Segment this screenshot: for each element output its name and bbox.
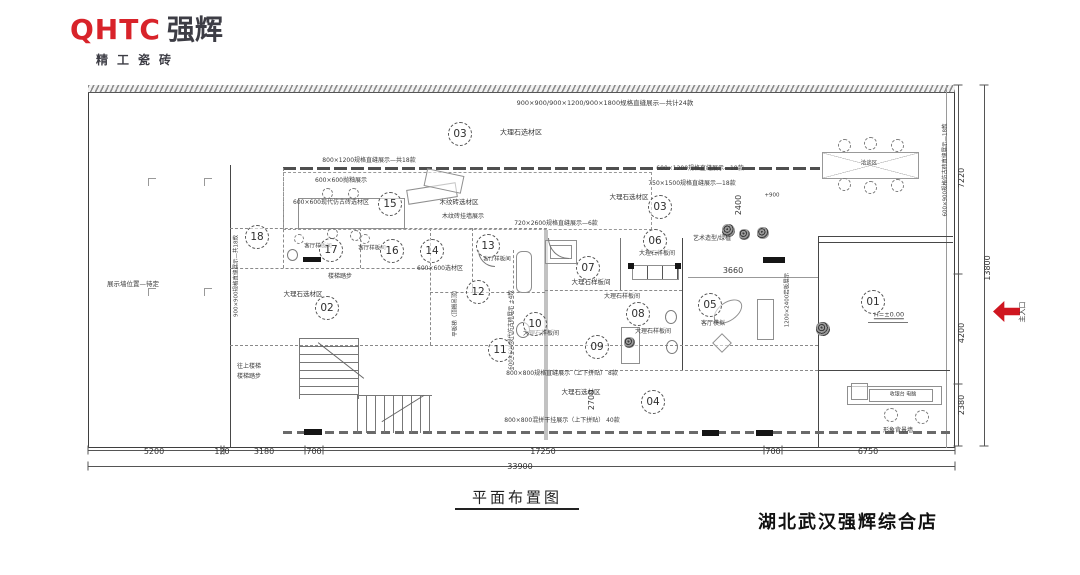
zone-circle: 06: [643, 229, 667, 253]
dimension-label: 3180: [254, 448, 274, 456]
stand-cap: [675, 263, 681, 269]
bathtub: [516, 251, 532, 293]
wall: [818, 370, 950, 371]
plan-label: 800×800混拼干挂展示（上下拼贴） 40款: [504, 418, 619, 424]
dimension-tick: [955, 462, 956, 471]
zone-circle: 03: [448, 122, 472, 146]
store-name: 湖北武汉强辉综合店: [758, 508, 938, 534]
plan-label: 客厅样板间: [483, 257, 511, 263]
dimension-line: [958, 85, 959, 446]
corner-mark: [204, 178, 212, 186]
plan-label: 600×1200规格直缝展示—18款: [656, 166, 743, 172]
plan-label: 大理石选材区: [284, 291, 323, 298]
plan-label: 600×600选材区: [417, 266, 463, 272]
dimension-label: 17250: [530, 448, 555, 456]
dimension-tick: [954, 384, 963, 385]
dimension-label: 7220: [958, 168, 966, 188]
plan-label: 形象背景墙: [883, 428, 913, 434]
plan-label: 楼梯踏步: [328, 274, 352, 280]
column-marker: [304, 429, 322, 435]
dimension-tick: [305, 446, 306, 455]
dimension-label: 2380: [958, 395, 966, 415]
toilet-icon: [287, 249, 298, 261]
drawing-title-underline: [455, 508, 579, 510]
zone-circle: 01: [861, 290, 885, 314]
plan-label: 800×1200规格直缝展示—共18款: [322, 158, 415, 164]
plan-label: 木纹砖挂墙展示: [442, 214, 484, 220]
dimension-tick: [782, 446, 783, 455]
dimension-tick: [980, 446, 989, 447]
zone-circle: 18: [245, 225, 269, 249]
logo-tagline: 精工瓷砖: [96, 51, 223, 68]
plan-label: 2400: [735, 195, 743, 215]
plan-label: 木纹砖选材区: [440, 199, 479, 206]
wall: [682, 238, 683, 370]
column-marker: [756, 430, 773, 436]
chair-icon: [891, 179, 904, 192]
tv-wall: [763, 257, 785, 263]
dimension-tick: [88, 462, 89, 471]
drawing-title: 平面布置图: [472, 487, 562, 508]
plan-label: 洽谈区: [861, 161, 878, 167]
plan-label: 大理石选材区: [610, 194, 649, 201]
plant-icon: [624, 337, 635, 348]
chair-icon: [884, 408, 898, 422]
plant-icon: [739, 229, 750, 240]
plan-label: 750×1500规格直缝展示—18款: [648, 181, 735, 187]
zone-circle: 10: [523, 312, 547, 336]
dimension-label: 700: [765, 448, 780, 456]
level-mark-line: [868, 322, 908, 323]
zone-circle: 02: [315, 296, 339, 320]
dimension-label: 13800: [984, 255, 992, 280]
dimension-tick: [954, 446, 963, 447]
plan-label: 收银台 电脑: [890, 393, 917, 398]
floor-plan-sheet: QHTC强辉 精工瓷砖: [0, 0, 1080, 575]
plan-label: 720×2600规格直缝展示—6款: [514, 221, 598, 227]
corner-mark: [148, 288, 156, 296]
wall: [620, 238, 621, 290]
fixture-icon: [294, 234, 304, 244]
zone-circle: 14: [420, 239, 444, 263]
plan-label: 平板梯（顶棚吊顶）: [453, 287, 459, 337]
plant-icon: [757, 227, 769, 239]
chair-icon: [915, 410, 929, 424]
zone-circle: 08: [626, 302, 650, 326]
plan-label: 楼梯踏步: [237, 374, 261, 380]
plan-label: 600×600抛釉展示: [315, 178, 367, 184]
logo-mark: QHTC: [70, 13, 161, 46]
dimension-label: 5200: [144, 448, 164, 456]
plan-label: 大理石样板间: [635, 329, 671, 335]
partition-line: [545, 290, 682, 291]
plan-label: 900×900规格直缝展示—共18款: [234, 235, 240, 317]
display-stand: [632, 265, 679, 280]
wall: [818, 236, 953, 237]
zone-circle: 05: [698, 293, 722, 317]
dimension-tick: [954, 274, 963, 275]
plan-label: 900×900/900×1200/900×1800规格直缝展示—共计24款: [517, 100, 694, 107]
plan-label: 600×600现代仿古砖展示 ±4款: [509, 290, 515, 369]
plan-label: 大理石样板间: [604, 294, 640, 300]
logo: QHTC强辉 精工瓷砖: [70, 8, 223, 68]
dimension-tick: [980, 85, 989, 86]
dimension-tick: [224, 446, 225, 455]
partition-line: [230, 268, 430, 269]
chair-icon: [864, 137, 877, 150]
chair-icon: [838, 178, 851, 191]
zone-circle: 16: [380, 239, 404, 263]
dimension-tick: [955, 446, 956, 455]
plan-label: 800×800规格直缝展示（上下拼贴） 8款: [506, 371, 618, 377]
dimension-tick: [88, 446, 89, 455]
dimension-tick: [954, 85, 963, 86]
plan-label: 1200×2400岩板展示: [785, 273, 791, 328]
plan-label: 600×900规格仿古砖直缝展示—18款: [943, 123, 949, 216]
zone-circle: 12: [466, 280, 490, 304]
dimension-tick: [323, 446, 324, 455]
wall: [818, 242, 953, 243]
dimension-tick: [764, 446, 765, 455]
zone-circle: 07: [576, 256, 600, 280]
zone-circle: 13: [476, 234, 500, 258]
corner-mark: [204, 288, 212, 296]
plant-icon: [816, 322, 830, 336]
toilet-icon: [666, 340, 678, 354]
logo-brand: 强辉: [167, 13, 223, 46]
dimension-label: 120: [214, 448, 229, 456]
plan-label: 往上楼梯: [237, 364, 261, 370]
plan-label: 客厅模拟: [701, 321, 725, 327]
sofa: [757, 299, 774, 340]
wall: [818, 236, 819, 448]
entrance-label: 主入口: [1020, 302, 1027, 323]
dimension-tick: [221, 446, 222, 455]
dimension-line: [688, 277, 818, 278]
toilet-icon: [665, 310, 677, 324]
plan-label: +900: [764, 193, 779, 199]
plan-label: 展示墙位置—待定: [107, 281, 159, 288]
dimension-label: 33900: [507, 463, 532, 471]
zone-circle: 11: [488, 338, 512, 362]
chair-icon: [322, 188, 333, 199]
fixture-icon: [360, 234, 370, 244]
chair-icon: [838, 139, 851, 152]
column-marker: [303, 257, 321, 262]
plan-label: 600×600现代仿古砖选材区: [293, 200, 369, 206]
chair-icon: [348, 188, 359, 199]
dimension-label: 6750: [858, 448, 878, 456]
entrance-arrow: [993, 301, 1020, 322]
chair-icon: [864, 181, 877, 194]
top-wall-hatch: [88, 85, 955, 93]
dimension-label: 4200: [958, 323, 966, 343]
plan-label: 大理石样板间: [572, 279, 611, 286]
corner-mark: [148, 178, 156, 186]
zone-circle: 17: [319, 238, 343, 262]
zone-circle: 03: [648, 195, 672, 219]
reception-cabinet: [851, 383, 868, 400]
chair-icon: [891, 139, 904, 152]
zone-circle: 04: [641, 390, 665, 414]
dimension-label: 700: [306, 448, 321, 456]
plan-label: 大理石选材区: [500, 130, 542, 137]
column-marker: [702, 430, 719, 436]
zone-circle: 09: [585, 335, 609, 359]
plan-label: 3660: [723, 267, 743, 275]
stand-cap: [628, 263, 634, 269]
plan-label: 2700: [588, 390, 596, 410]
plan-label: 艺术造型/绿植: [693, 236, 731, 242]
zone-circle: 15: [378, 192, 402, 216]
wall: [230, 165, 231, 448]
